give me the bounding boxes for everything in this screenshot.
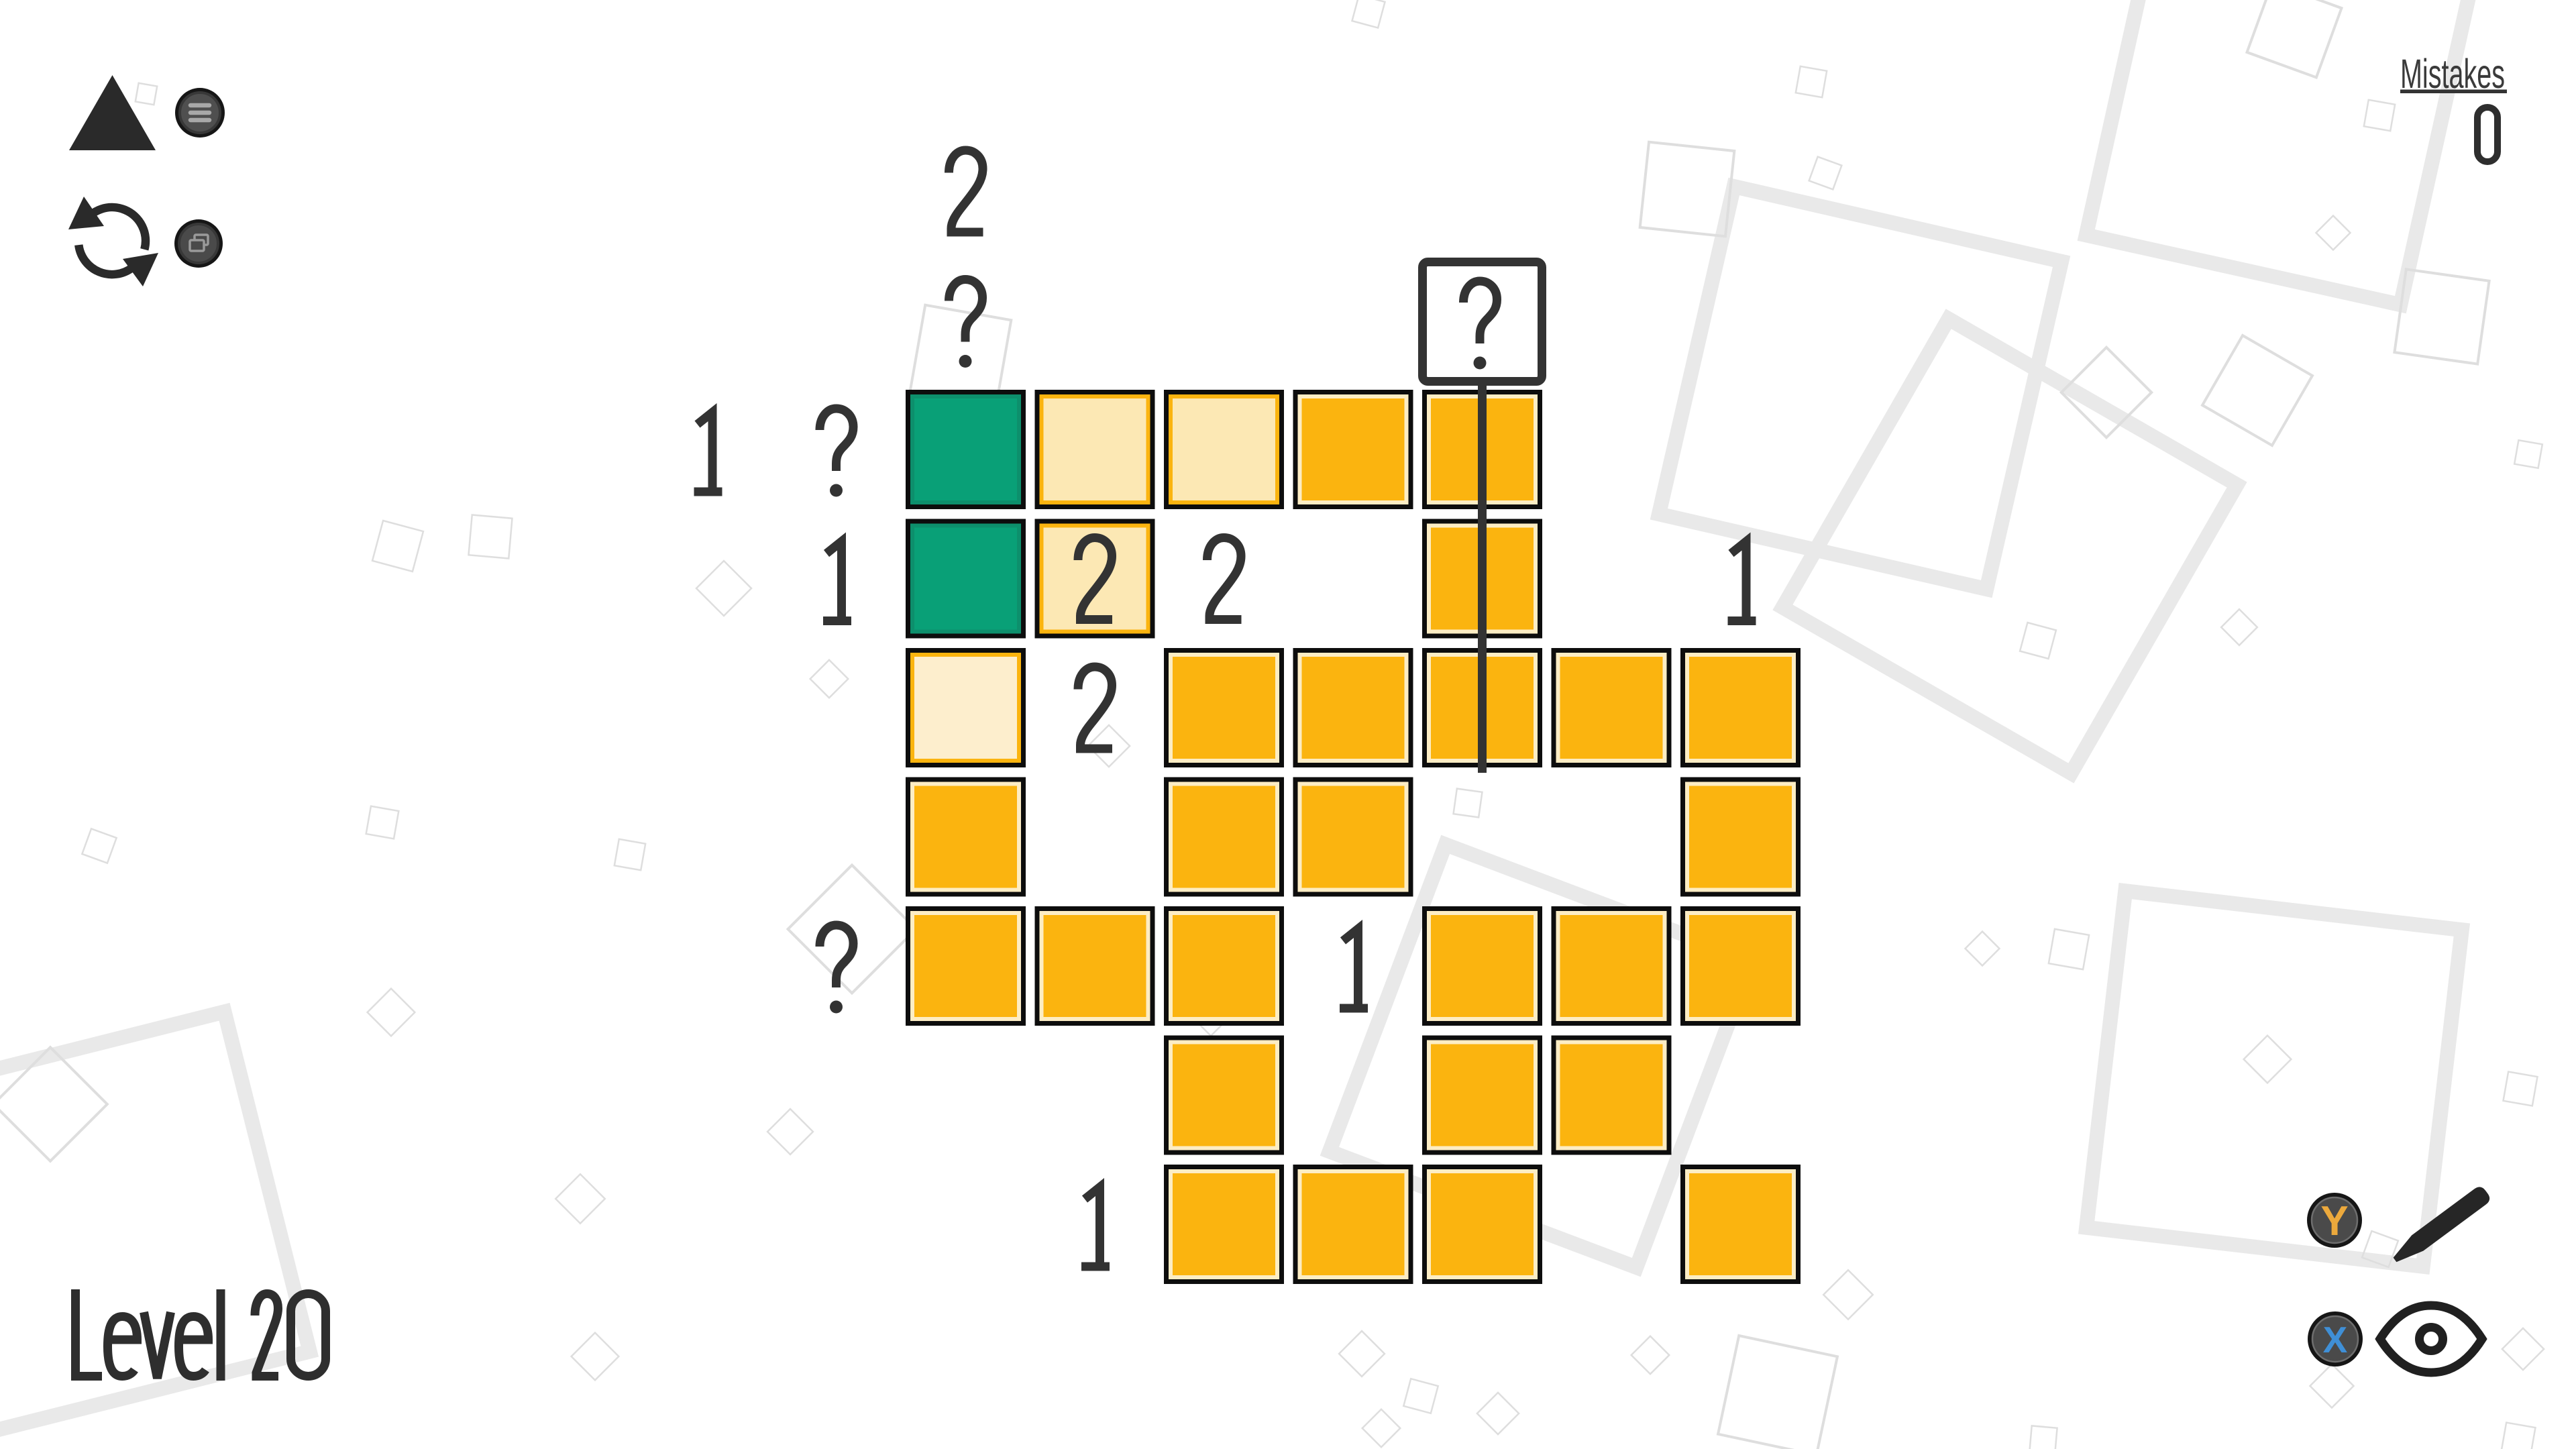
- svg-text:X: X: [2323, 1319, 2348, 1360]
- svg-text:Y: Y: [2320, 1198, 2348, 1244]
